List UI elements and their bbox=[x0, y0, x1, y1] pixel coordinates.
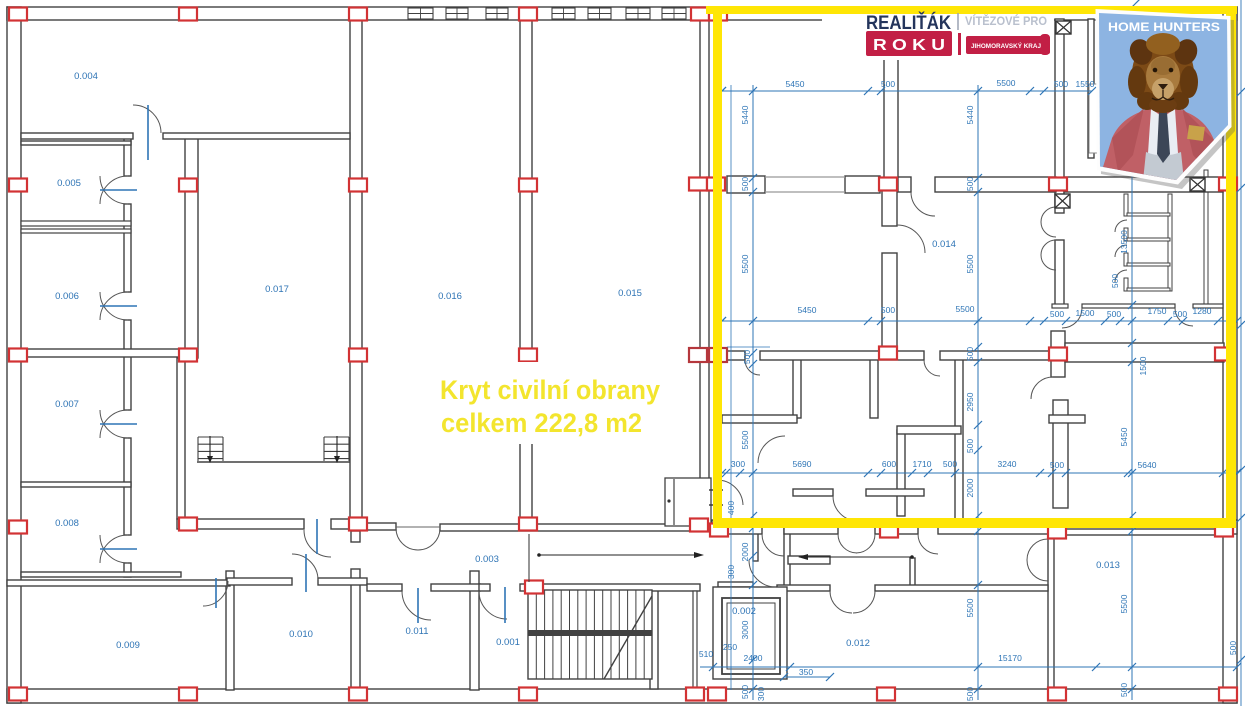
svg-text:0.016: 0.016 bbox=[438, 291, 462, 302]
svg-text:0.014: 0.014 bbox=[932, 239, 956, 250]
svg-text:5690: 5690 bbox=[793, 459, 812, 469]
svg-text:0.005: 0.005 bbox=[57, 178, 81, 189]
svg-text:500: 500 bbox=[742, 350, 752, 364]
svg-text:5500: 5500 bbox=[956, 304, 975, 314]
svg-text:500: 500 bbox=[740, 685, 750, 699]
svg-text:500: 500 bbox=[881, 305, 895, 315]
svg-text:5500: 5500 bbox=[1119, 594, 1129, 613]
svg-text:5640: 5640 bbox=[1138, 460, 1157, 470]
svg-text:1500: 1500 bbox=[1076, 308, 1095, 318]
svg-text:5500: 5500 bbox=[740, 430, 750, 449]
svg-text:0.004: 0.004 bbox=[74, 71, 98, 82]
svg-text:250: 250 bbox=[723, 642, 737, 652]
svg-text:0.002: 0.002 bbox=[732, 606, 756, 617]
svg-text:1280: 1280 bbox=[1193, 306, 1212, 316]
svg-text:13500: 13500 bbox=[1119, 230, 1129, 254]
svg-text:2000: 2000 bbox=[740, 542, 750, 561]
svg-text:0.008: 0.008 bbox=[55, 518, 79, 529]
svg-text:500: 500 bbox=[1173, 309, 1187, 319]
svg-text:REALIŤÁK: REALIŤÁK bbox=[866, 12, 951, 34]
svg-text:JIHOMORAVSKÝ KRAJ: JIHOMORAVSKÝ KRAJ bbox=[971, 41, 1041, 50]
svg-text:500: 500 bbox=[1054, 79, 1068, 89]
svg-text:500: 500 bbox=[1107, 309, 1121, 319]
svg-text:15170: 15170 bbox=[998, 653, 1022, 663]
svg-text:0.009: 0.009 bbox=[116, 640, 140, 651]
svg-text:1550: 1550 bbox=[1076, 79, 1095, 89]
svg-text:0.001: 0.001 bbox=[496, 637, 520, 648]
svg-text:300: 300 bbox=[756, 687, 766, 701]
svg-text:350: 350 bbox=[799, 667, 813, 677]
svg-text:5500: 5500 bbox=[997, 78, 1016, 88]
svg-text:500: 500 bbox=[965, 439, 975, 453]
svg-text:2000: 2000 bbox=[965, 478, 975, 497]
svg-text:celkem 222,8 m2: celkem 222,8 m2 bbox=[441, 408, 642, 438]
svg-text:0.007: 0.007 bbox=[55, 399, 79, 410]
svg-text:500: 500 bbox=[965, 347, 975, 361]
svg-text:5440: 5440 bbox=[740, 105, 750, 124]
svg-text:3240: 3240 bbox=[998, 459, 1017, 469]
svg-text:500: 500 bbox=[1050, 309, 1064, 319]
svg-text:500: 500 bbox=[1119, 683, 1129, 697]
svg-text:0.017: 0.017 bbox=[265, 284, 289, 295]
svg-text:400: 400 bbox=[726, 501, 736, 515]
svg-text:0.012: 0.012 bbox=[846, 638, 870, 649]
svg-text:5450: 5450 bbox=[1119, 427, 1129, 446]
svg-text:R O K U: R O K U bbox=[873, 37, 945, 54]
svg-text:0.006: 0.006 bbox=[55, 291, 79, 302]
svg-text:1500: 1500 bbox=[1138, 356, 1148, 375]
svg-text:0.013: 0.013 bbox=[1096, 560, 1120, 571]
svg-text:300: 300 bbox=[731, 459, 745, 469]
svg-text:0.011: 0.011 bbox=[405, 626, 428, 637]
svg-text:500: 500 bbox=[881, 79, 895, 89]
svg-text:2950: 2950 bbox=[965, 392, 975, 411]
svg-text:0.010: 0.010 bbox=[289, 629, 313, 640]
svg-text:500: 500 bbox=[1050, 460, 1064, 470]
svg-text:5500: 5500 bbox=[965, 254, 975, 273]
svg-text:5450: 5450 bbox=[798, 305, 817, 315]
svg-text:1710: 1710 bbox=[913, 459, 932, 469]
svg-text:300: 300 bbox=[726, 565, 736, 579]
svg-text:5500: 5500 bbox=[965, 598, 975, 617]
svg-text:1750: 1750 bbox=[1148, 306, 1167, 316]
svg-text:3000: 3000 bbox=[740, 620, 750, 639]
svg-text:500: 500 bbox=[1228, 641, 1238, 655]
svg-text:Kryt civilní obrany: Kryt civilní obrany bbox=[440, 375, 660, 405]
svg-text:500: 500 bbox=[740, 177, 750, 191]
svg-text:600: 600 bbox=[882, 459, 896, 469]
svg-text:5450: 5450 bbox=[786, 79, 805, 89]
svg-text:500: 500 bbox=[965, 177, 975, 191]
svg-text:VÍTĚZOVÉ PRO: VÍTĚZOVÉ PRO bbox=[965, 13, 1047, 28]
svg-text:5500: 5500 bbox=[740, 254, 750, 273]
svg-text:500: 500 bbox=[943, 459, 957, 469]
svg-text:510: 510 bbox=[699, 649, 713, 659]
svg-text:500: 500 bbox=[965, 687, 975, 701]
svg-text:5440: 5440 bbox=[965, 105, 975, 124]
svg-text:500: 500 bbox=[1110, 274, 1120, 288]
svg-text:0.015: 0.015 bbox=[618, 288, 642, 299]
svg-text:HOME HUNTERS: HOME HUNTERS bbox=[1108, 22, 1220, 34]
svg-text:0.003: 0.003 bbox=[475, 554, 499, 565]
